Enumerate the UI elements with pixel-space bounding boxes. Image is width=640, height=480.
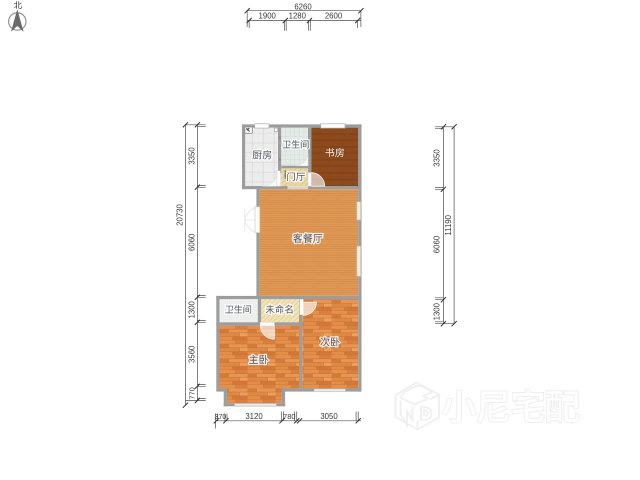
svg-text:6060: 6060	[187, 233, 196, 251]
svg-text:3560: 3560	[187, 345, 196, 363]
svg-text:6260: 6260	[294, 3, 312, 12]
svg-text:2600: 2600	[325, 12, 343, 21]
svg-text:20730: 20730	[176, 203, 185, 225]
svg-text:780: 780	[283, 412, 296, 421]
svg-text:6060: 6060	[433, 235, 442, 253]
svg-text:1900: 1900	[259, 12, 277, 21]
svg-text:370: 370	[215, 414, 227, 421]
svg-text:1280: 1280	[289, 12, 307, 21]
svg-text:3120: 3120	[245, 412, 263, 421]
svg-text:3050: 3050	[320, 412, 338, 421]
svg-text:770: 770	[187, 387, 196, 400]
svg-text:3350: 3350	[433, 149, 442, 167]
svg-text:1300: 1300	[187, 300, 196, 318]
svg-text:11190: 11190	[444, 214, 453, 235]
svg-text:1300: 1300	[433, 302, 442, 320]
svg-text:3350: 3350	[187, 147, 196, 165]
